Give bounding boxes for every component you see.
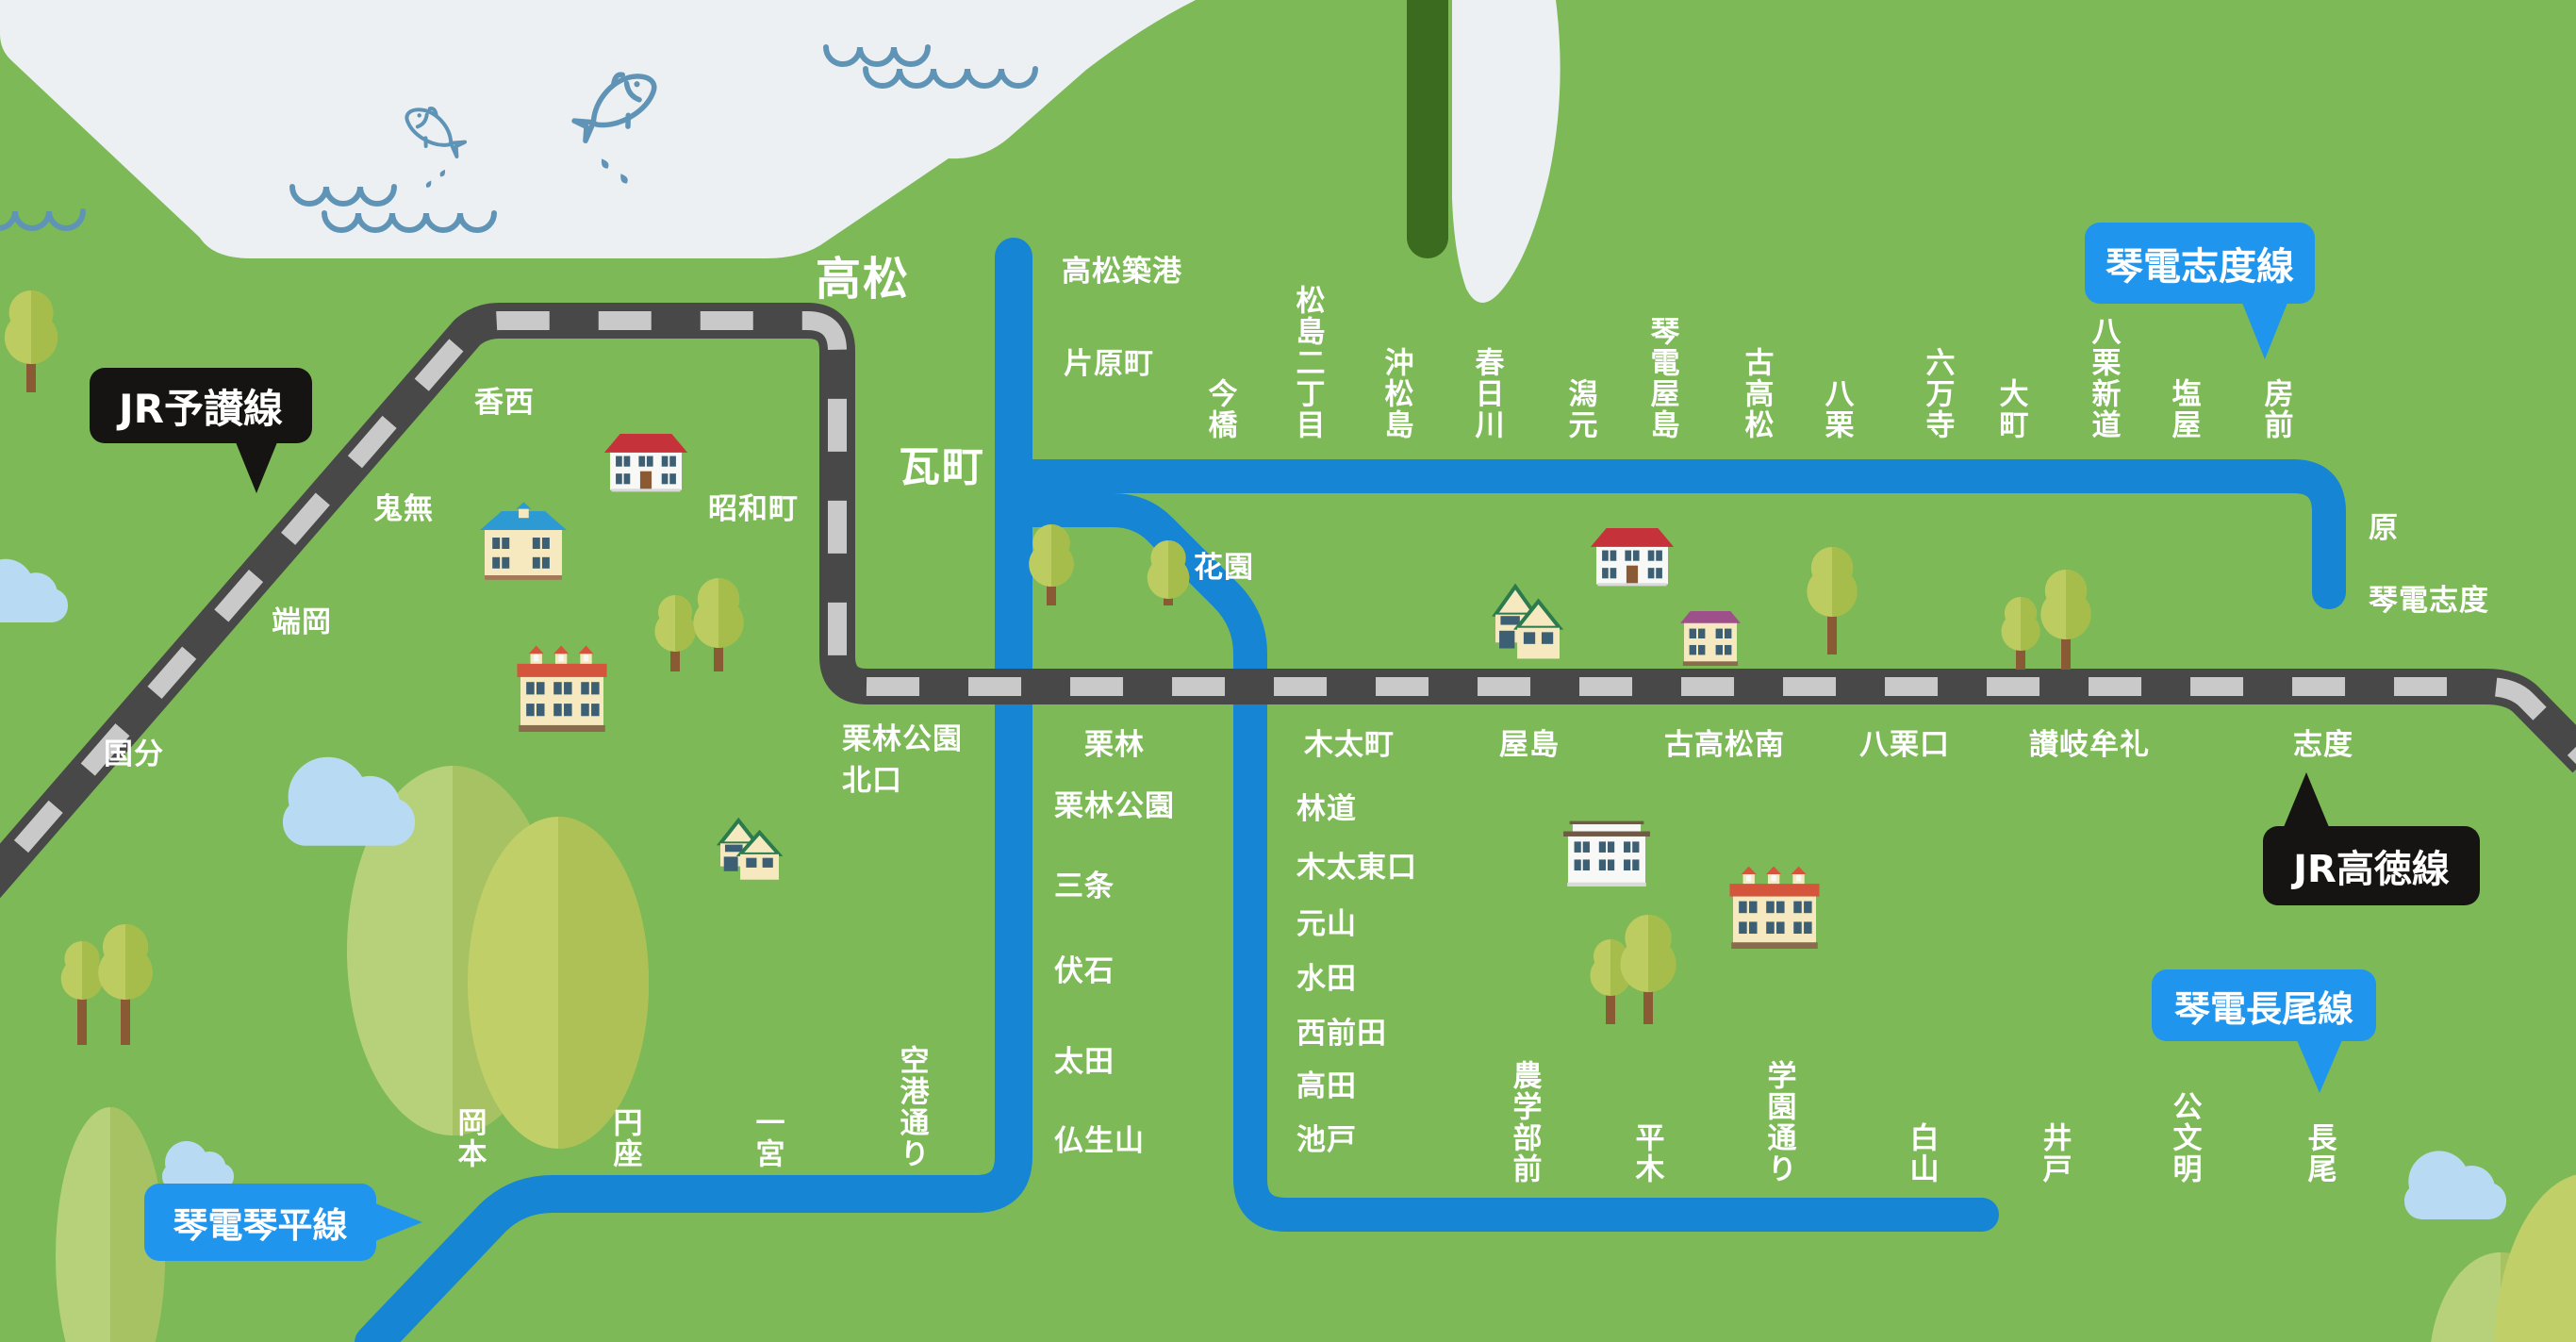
line-badge-tail [2284,772,2329,827]
station-label: 水田 [1296,958,1357,1000]
station-label: 古高松 [1742,347,1771,440]
station-label: 池戸 [1296,1119,1357,1161]
line-badge-label: 琴電長尾線 [2174,980,2353,1032]
station-label: 学園通り [1764,1060,1793,1185]
major-station-label: 高松 [816,257,910,302]
station-label: 大町 [1996,378,2025,440]
station-label: 屋島 [1499,724,1560,766]
station-label: 六万寺 [1923,347,1952,440]
station-label: 円座 [610,1107,639,1169]
line-badge-label: JR高徳線 [2293,838,2450,893]
line-badge: JR予讃線 [90,368,312,443]
station-label: 木太東口 [1296,847,1417,888]
station-label: 国分 [104,734,164,775]
station-label: 松島二丁目 [1293,285,1322,440]
station-label: 仏生山 [1054,1120,1145,1162]
station-label: 花園 [1194,547,1254,588]
line-badge-label: 琴電琴平線 [173,1197,348,1248]
station-label: 岡本 [454,1107,484,1169]
line-badge-tail [236,442,277,493]
station-labels: 高松築港片原町花園原琴電志度昭和町香西鬼無端岡国分栗林公園 北口栗林木太町屋島古… [0,0,2576,1342]
station-label: 空港通り [897,1045,926,1169]
station-label: 高田 [1296,1066,1357,1107]
station-label: 伏石 [1054,951,1115,992]
station-label: 琴電志度 [2369,580,2489,621]
station-label: 農学部前 [1510,1060,1539,1185]
station-label: 春日川 [1472,347,1501,440]
station-label: 三条 [1054,866,1115,907]
line-badge-label: 琴電志度線 [2105,236,2294,290]
major-station-label: 瓦町 [899,447,985,489]
station-label: 栗林公園 北口 [842,719,963,802]
station-label: 昭和町 [708,489,799,530]
station-label: 木太町 [1304,724,1395,766]
line-badge-tail [2297,1040,2342,1093]
takamatsu-rail-map: 高松築港片原町花園原琴電志度昭和町香西鬼無端岡国分栗林公園 北口栗林木太町屋島古… [0,0,2576,1342]
station-label: 西前田 [1296,1013,1387,1054]
station-label: 高松築港 [1062,251,1182,292]
station-label: 房前 [2261,378,2290,440]
station-label: 栗林 [1084,724,1145,766]
station-label: 讃岐牟礼 [2029,724,2150,766]
station-label: 元山 [1296,903,1357,945]
line-badge: 琴電長尾線 [2152,969,2376,1041]
station-label: 志度 [2293,724,2353,766]
line-badge-tail [2242,303,2287,359]
station-label: 平木 [1632,1122,1661,1185]
station-label: 香西 [474,382,535,423]
line-badge: 琴電琴平線 [144,1184,376,1261]
line-badge: JR高徳線 [2263,826,2480,905]
station-label: 長尾 [2304,1122,2334,1185]
station-label: 原 [2369,507,2399,549]
station-label: 潟元 [1565,378,1594,440]
station-label: 古高松南 [1664,724,1785,766]
station-label: 琴電屋島 [1647,316,1676,440]
station-label: 林道 [1296,788,1357,830]
station-label: 八栗 [1822,378,1851,440]
station-label: 太田 [1054,1041,1115,1083]
station-label: 塩屋 [2169,378,2198,440]
line-badge-tail [375,1203,422,1241]
station-label: 片原町 [1064,343,1154,385]
line-badge: 琴電志度線 [2085,223,2315,304]
station-label: 八栗口 [1859,724,1950,766]
station-label: 今橋 [1205,378,1234,440]
station-label: 井戸 [2039,1122,2069,1185]
station-label: 沖松島 [1381,347,1411,440]
line-badge-label: JR予讃線 [119,377,283,435]
station-label: 栗林公園 [1054,786,1175,827]
station-label: 鬼無 [373,489,434,530]
station-label: 八栗新道 [2089,316,2118,440]
station-label: 端岡 [272,602,332,643]
station-label: 公文明 [2170,1091,2199,1185]
station-label: 白山 [1907,1122,1936,1185]
station-label: 一宮 [752,1107,782,1169]
